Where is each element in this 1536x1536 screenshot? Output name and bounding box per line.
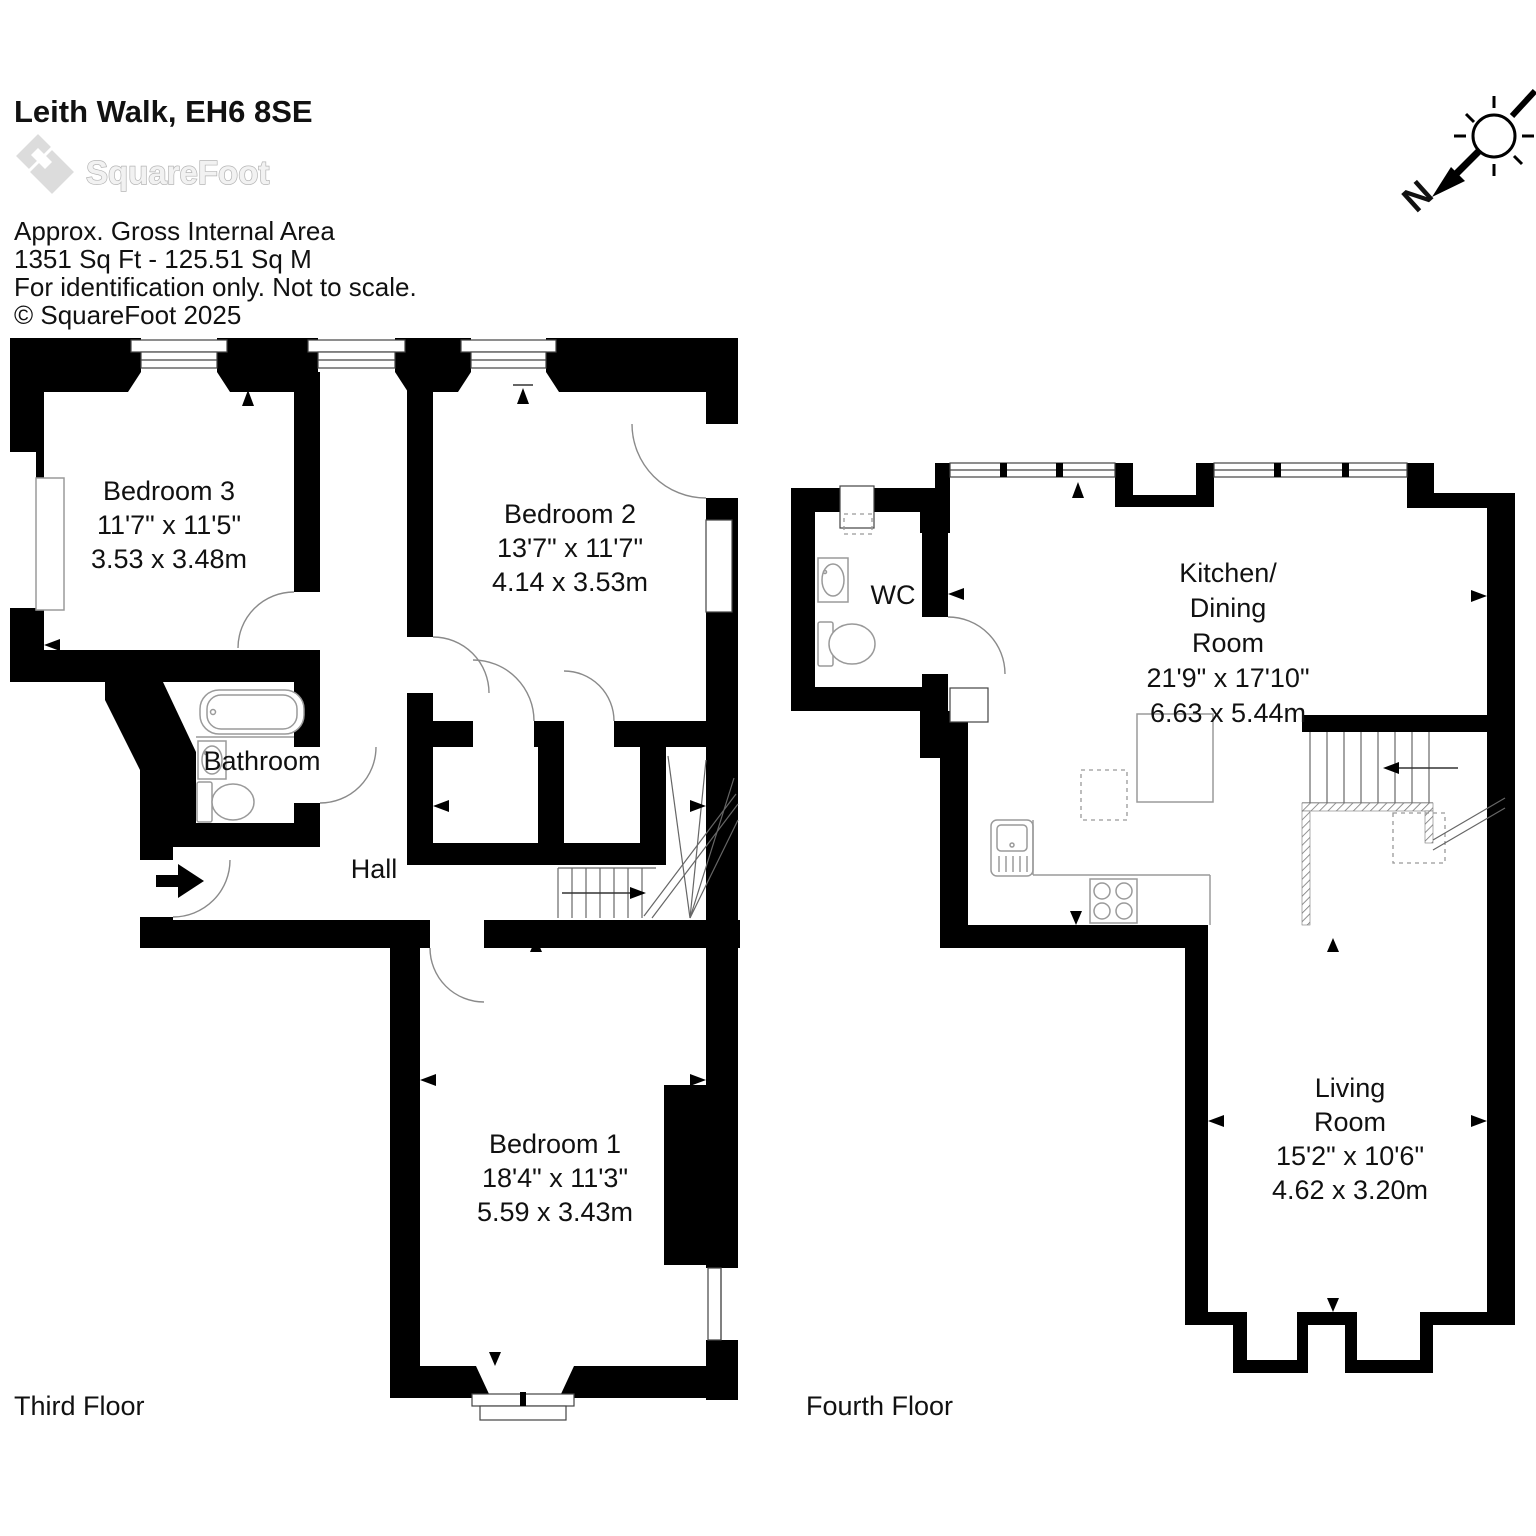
svg-text:15'2" x 10'6": 15'2" x 10'6" [1276,1141,1424,1171]
window-bedroom1-side [708,1268,721,1340]
room-label-bedroom1: Bedroom 1 18'4" x 11'3" 5.59 x 3.43m [477,1129,633,1227]
door-arc-closet-a [473,660,534,721]
window-kitchen-left [950,463,1115,477]
page-title: Leith Walk, EH6 8SE [14,94,313,129]
svg-text:Kitchen/: Kitchen/ [1179,558,1277,588]
north-label: N [1394,172,1441,220]
caption-fourth-floor: Fourth Floor [806,1391,953,1421]
door-arc-bedroom3 [238,592,294,648]
door-arc-bedroom2 [433,637,489,693]
floorplan-canvas: Leith Walk, EH6 8SE SquareFoot Approx. G… [0,0,1536,1536]
floor-plan-fourth: WC Kitchen/ Dining Room 21'9" x 17'10" 6… [791,463,1515,1421]
room-label-bedroom2: Bedroom 2 13'7" x 11'7" 4.14 x 3.53m [492,499,648,597]
svg-text:Dining: Dining [1190,593,1267,623]
kitchen-unit-dashed [1081,770,1127,820]
window-bedroom1-bay [472,1392,574,1420]
svg-text:13'7" x 11'7": 13'7" x 11'7" [497,533,643,563]
svg-text:Bedroom 1: Bedroom 1 [489,1129,621,1159]
room-label-bedroom3: Bedroom 3 11'7" x 11'5" 3.53 x 3.48m [91,476,247,574]
svg-text:4.14 x 3.53m: 4.14 x 3.53m [492,567,648,597]
room-label-living: Living Room 15'2" x 10'6" 4.62 x 3.20m [1272,1073,1428,1205]
stair-direction-arrow-4f [1383,762,1399,774]
room-label-hall: Hall [351,854,398,884]
bedroom3-alcove [36,478,64,610]
squarefoot-logo-text: SquareFoot [86,154,269,191]
area-line-2: 1351 Sq Ft - 125.51 Sq M [14,244,312,274]
fourth-floor-stairs [1302,732,1505,925]
svg-text:Bedroom 2: Bedroom 2 [504,499,636,529]
area-line-3: For identification only. Not to scale. [14,272,417,302]
fourth-floor-windows [950,463,1407,477]
stair-direction-arrow [630,887,646,899]
svg-text:3.53 x 3.48m: 3.53 x 3.48m [91,544,247,574]
caption-third-floor: Third Floor [14,1391,145,1421]
floor-plan-third: Bedroom 3 11'7" x 11'5" 3.53 x 3.48m Bed… [10,338,740,1421]
floorplan-page: Leith Walk, EH6 8SE SquareFoot Approx. G… [0,0,1536,1536]
svg-text:Room: Room [1192,628,1264,658]
room-label-kitchen: Kitchen/ Dining Room 21'9" x 17'10" 6.63… [1146,558,1309,728]
area-line-1: Approx. Gross Internal Area [14,216,335,246]
squarefoot-logo-icon [14,132,76,196]
wc-toilet-icon [818,622,875,666]
copyright-line: © SquareFoot 2025 [14,300,241,330]
svg-text:21'9" x 17'10": 21'9" x 17'10" [1146,663,1309,693]
header: Leith Walk, EH6 8SE SquareFoot Approx. G… [14,94,417,330]
svg-text:4.62 x 3.20m: 4.62 x 3.20m [1272,1175,1428,1205]
wc-cistern-recess [840,486,874,528]
toilet-icon [197,782,254,822]
kitchen-sink-icon [991,820,1033,876]
wc-cupboard [950,688,988,722]
hob-icon [1090,879,1137,923]
door-arc-wc [948,617,1005,674]
svg-text:Room: Room [1314,1107,1386,1137]
door-arc-bedroom2-cupboard [632,424,706,498]
svg-text:5.59 x 3.43m: 5.59 x 3.43m [477,1197,633,1227]
wc-sink-icon [818,558,848,602]
svg-text:18'4" x 11'3": 18'4" x 11'3" [482,1163,628,1193]
window-landing [308,340,405,368]
svg-text:Bedroom 3: Bedroom 3 [103,476,235,506]
svg-text:6.63 x 5.44m: 6.63 x 5.44m [1150,698,1306,728]
window-bedroom2 [461,340,556,368]
door-arc-bathroom [320,747,376,803]
north-arrow-icon: N [1394,91,1535,220]
room-label-wc: WC [871,580,916,610]
svg-text:11'7" x 11'5": 11'7" x 11'5" [97,510,241,540]
door-arc-bedroom1 [430,948,484,1002]
door-arc-closet-b [564,671,614,721]
kitchen-fixtures [991,714,1213,925]
room-label-bathroom: Bathroom [203,746,320,776]
window-bedroom3 [131,340,227,368]
svg-text:Living: Living [1315,1073,1386,1103]
window-kitchen-right [1214,463,1407,477]
entrance-arrow-icon [156,864,204,898]
stair-railing [1302,803,1433,811]
